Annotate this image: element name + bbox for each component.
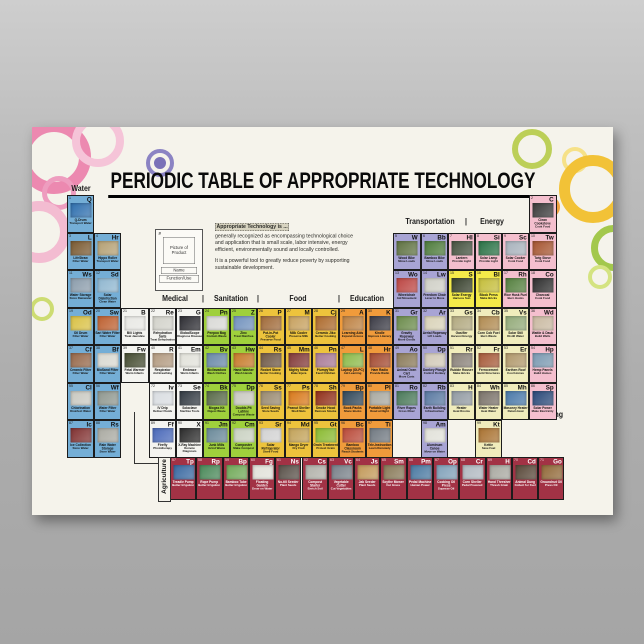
element-caption: Mango DryerDry Fruit [286, 444, 311, 451]
element-symbol: Rb [437, 384, 445, 391]
element-caption: ComposterMake Compost [231, 444, 256, 451]
element-function: Move Carts [394, 376, 419, 379]
element-cell-83: 83HHeaterHeat Rooms [448, 383, 475, 421]
element-cell-content: 35VsSolar StillDistill Water [503, 309, 528, 345]
element-caption: Water FilterFilter Water [95, 406, 120, 413]
element-cell-content: 27MMilk CoolerPreserve Milk [286, 309, 311, 345]
element-photo [370, 428, 391, 443]
element-symbol: Od [83, 309, 92, 316]
element-cell-79: 79BpBook PacksShare Books [339, 383, 366, 421]
element-photo [179, 391, 200, 406]
element-cell-76: 76SsSeed SavingStore Seeds [257, 383, 284, 421]
element-caption: Pedal MachineHuman Power [408, 481, 432, 488]
element-name: Aerial Ropeway [422, 331, 447, 335]
element-caption: Portable LightRead at Night [367, 406, 392, 413]
element-cell-content: 60FgFloating GardenGrow on Water [250, 458, 274, 499]
element-photo [98, 241, 119, 256]
element-number: 55 [69, 384, 73, 388]
element-number: 4 [96, 234, 98, 238]
element-number: 69 [488, 459, 492, 463]
element-photo [98, 391, 119, 406]
element-photo [437, 465, 458, 480]
element-photo [234, 353, 255, 368]
element-name: Water Filter [95, 406, 120, 410]
element-number: 20 [96, 309, 100, 313]
element-photo [305, 465, 326, 480]
element-cell-13: 13WoWheelchairAid Movement [393, 270, 420, 308]
element-cell-38: 38BfBioSand FilterFilter Water [94, 345, 121, 383]
element-number: 10 [531, 234, 535, 238]
element-symbol: Sw [110, 309, 119, 316]
element-number: 28 [314, 309, 318, 313]
element-caption: LifeStrawFilter Water [68, 256, 93, 263]
element-cell-content: 74BkBiogas KitDigest Waste [204, 384, 229, 420]
element-name: Sari Water Filter [95, 331, 120, 335]
element-function: Better Irrigation [197, 484, 221, 487]
element-photo [98, 278, 119, 293]
element-number: 23 [178, 309, 182, 313]
element-symbol: B [142, 309, 147, 316]
element-function: Control Donkey [422, 372, 447, 375]
element-number: 90 [178, 422, 182, 426]
element-caption: WheelchairAid Movement [394, 294, 419, 301]
element-photo [234, 428, 255, 443]
element-symbol: Co [546, 271, 554, 278]
element-function: Share Books [340, 410, 365, 413]
element-cell-content: 32ArAerial RopewayLift Loads [422, 309, 447, 345]
element-name: Solaclave [177, 406, 202, 410]
element-photo [71, 241, 92, 256]
element-photo [200, 465, 221, 480]
element-function: Preserve Milk [286, 335, 311, 338]
element-caption: Hand ThresherThresh Grain [487, 481, 511, 488]
element-caption: Peanut ShellerShell Nuts [286, 406, 311, 413]
element-symbol: Sc [519, 234, 527, 241]
element-cell-91: 91JmJunk MillsGrind Waste [203, 420, 230, 458]
element-caption: Ceramic FilterFilter Water [68, 369, 93, 376]
element-function: Remote Diagnosis [177, 447, 202, 453]
element-cell-content: 19OdOil DrumFilter Water [68, 309, 93, 345]
group-label: Energy [480, 217, 504, 226]
element-name: Solar Disinfection [95, 294, 120, 301]
element-caption: Solar CookerCook Food [503, 256, 528, 263]
element-photo [451, 278, 472, 293]
decor-circle [588, 265, 612, 289]
element-number: 16 [477, 272, 481, 276]
element-symbol: Ic [86, 421, 91, 428]
element-function: Provide Light [476, 260, 501, 263]
element-number: 88 [96, 422, 100, 426]
element-symbol: Fr [493, 346, 499, 353]
element-cell-content: 39FwFetal WarmerWarm Infants [122, 346, 147, 382]
element-caption: Donkey PloughControl Donkey [422, 369, 447, 376]
element-cell-content: 86SpSolar PowerMake Electricity [530, 384, 555, 420]
element-cell-content: 4HrHippo RollerTransport Water [95, 234, 120, 270]
element-symbol: Iv [168, 384, 173, 391]
element-symbol: Wd [544, 309, 554, 316]
element-cell-content: 48HrHam RadioProvide Radio [367, 346, 392, 382]
element-name: Learning Aids [340, 331, 365, 335]
element-number: 53 [504, 347, 508, 351]
element-caption: Ham RadioProvide Radio [367, 369, 392, 376]
element-function: Squeeze Oil [434, 488, 458, 491]
element-symbol: Sh [328, 384, 336, 391]
element-cell-45: 45MmMighty MitadBake Injera [285, 345, 312, 383]
element-symbol: Pn [220, 309, 228, 316]
element-caption: IV DripDeliver Fluids [150, 406, 175, 413]
element-name: Bamboo Classroom [340, 444, 365, 451]
element-photo [506, 353, 527, 368]
element-function: Transport Water [68, 222, 93, 225]
element-cell-content: 21BBili LightsTreat Jaundice [122, 309, 147, 345]
element-number: 27 [287, 309, 291, 313]
element-cell-15: 15SSolar EnergyHarness Sun [448, 270, 475, 308]
element-cell-content: 22ReRehydration SaltsTreat Dehydration [150, 309, 175, 345]
element-name: Animal Oxen Cart [394, 369, 419, 376]
element-cell-content: 65SmScythe MowerCut Grass [381, 458, 405, 499]
element-function: Move Goods [394, 338, 419, 341]
element-name: Zinc [231, 331, 256, 335]
element-caption: Hand WasherWash Hands [231, 369, 256, 376]
element-cell-53: 53ErEarthen RoofCool Homes [502, 345, 529, 383]
element-number: 87 [69, 422, 73, 426]
element-name: Gravity Ropeway [394, 331, 419, 338]
element-photo [234, 316, 255, 331]
element-photo [533, 241, 554, 256]
element-cell-content: 58RpRope PumpBetter Irrigation [197, 458, 221, 499]
element-caption: Rocket StoveBetter Cooking [258, 369, 283, 376]
element-photo [358, 465, 379, 480]
element-photo [479, 428, 500, 443]
element-symbol: Sp [546, 384, 554, 391]
element-cell-4: 4HrHippo RollerTransport Water [94, 233, 121, 271]
element-cell-content: 41EmEmbraceWarm Infants [177, 346, 202, 382]
element-cell-31: 31GrGravity RopewayMove Goods [393, 308, 420, 346]
element-photo [533, 203, 554, 218]
element-caption: Grain TreatmentProtect Grain [313, 444, 338, 451]
element-cell-content: 9ScSolar CookerCook Food [503, 234, 528, 270]
element-name: Hippo Roller [95, 256, 120, 260]
element-cell-54: 54HpHemp PanelsBuild Homes [529, 345, 556, 383]
element-name: Wood Bike [394, 256, 419, 260]
element-cell-97: 97TiTele-InstructionLearn Remotely [366, 420, 393, 458]
element-symbol: W [412, 234, 418, 241]
element-number: 83 [450, 384, 454, 388]
element-number: 93 [259, 422, 263, 426]
element-number: 8 [477, 234, 479, 238]
element-function: Make Compost [231, 447, 256, 450]
element-cell-6: 6BbBamboo BikeMove Loads [421, 233, 448, 271]
element-number: 7 [450, 234, 452, 238]
element-cell-88: 88RsRain Water StorageStore Water [94, 420, 121, 458]
element-symbol: Wo [408, 271, 418, 278]
element-cell-28: 28CjCeramic JikoBetter Cooking [312, 308, 339, 346]
element-caption: Rope PumpBetter Irrigation [197, 481, 221, 488]
element-cell-55: 55ClChlorinationDisinfect Water [67, 383, 94, 421]
element-cell-content: 85MhMasonry HeaterRetain Heat [503, 384, 528, 420]
element-caption: GlobalScopeDiagnose Disease [177, 331, 202, 338]
element-function: Store Rainwater [68, 297, 93, 300]
element-function: Better Irrigation [171, 484, 195, 487]
element-name: Heater [449, 406, 474, 410]
element-cell-50: 50DpDonkey PloughControl Donkey [421, 345, 448, 383]
element-cell-62: 62CsCompost StarterEnrich Soil [302, 457, 328, 500]
element-symbol: Wh [490, 384, 500, 391]
element-symbol: Tp [186, 458, 194, 465]
element-number: 38 [96, 347, 100, 351]
element-cell-content: 49AoAnimal Oxen CartMove Carts [394, 346, 419, 382]
element-cell-content: 34CbCorn Cob FuelBurn Waste [476, 309, 501, 345]
element-function: Wash Hands [231, 372, 256, 375]
element-photo [410, 465, 431, 480]
element-symbol: Sr [275, 421, 282, 428]
element-cell-69: 69HHand ThresherThresh Grain [486, 457, 512, 500]
element-name: Clean Cookstove [530, 219, 555, 226]
element-photo [451, 353, 472, 368]
element-caption: GasifierHarvest Energy [449, 331, 474, 338]
element-symbol: P [278, 309, 282, 316]
element-function: Cook Food [530, 226, 555, 229]
element-name: Biogas Kit [204, 406, 229, 410]
element-name: Bamboo Bike [422, 256, 447, 260]
element-name: Vegetable Cutter [329, 481, 353, 488]
group-label: | [257, 294, 259, 303]
element-cell-94: 94MdMango DryerDry Fruit [285, 420, 312, 458]
element-number: 89 [151, 422, 155, 426]
element-symbol: R [169, 346, 174, 353]
element-cell-57: 57TpTreadle PumpBetter Irrigation [170, 457, 196, 500]
element-photo [288, 316, 309, 331]
element-number: 85 [504, 384, 508, 388]
element-photo [479, 353, 500, 368]
element-photo [451, 316, 472, 331]
element-name: Pot-in-Pot Cooler [258, 331, 283, 338]
element-key-inner: # Picture of Product Name Function/Use [156, 230, 202, 290]
element-cell-content: 83HHeaterHeat Rooms [449, 384, 474, 420]
element-number: 61 [277, 459, 281, 463]
element-number: 14 [423, 272, 427, 276]
element-caption: Animal DungCollect for Fuel [513, 481, 537, 488]
element-caption: SolaclaveSterilize Tools [177, 406, 202, 413]
element-number: 67 [435, 459, 439, 463]
element-caption: Corn Cob FuelBurn Waste [476, 331, 501, 338]
element-cell-content: 2CClean CookstoveCook Food [530, 196, 555, 232]
element-cell-2: 2CClean CookstoveCook Food [529, 195, 556, 233]
element-cell-content: 66PmPedal MachineHuman Power [408, 458, 432, 499]
element-caption: Hemp PanelsBuild Homes [530, 369, 555, 376]
element-cell-content: 37CfCeramic FilterFilter Water [68, 346, 93, 382]
key-number-label: # [159, 231, 162, 236]
element-cell-content: 82RbEarth BuildingInfrastructure [422, 384, 447, 420]
element-cell-content: 8SiSolar LampProvide Light [476, 234, 501, 270]
element-function: Filter Water [68, 335, 93, 338]
element-cell-content: 43HwHand WasherWash Hands [231, 346, 256, 382]
element-function: Cool Homes [503, 372, 528, 375]
element-caption: Fetal WarmerWarm Infants [122, 369, 147, 376]
element-name: Earth Building [422, 406, 447, 410]
element-function: Cut Grass [381, 484, 405, 487]
element-caption: KettleSave Fuel [476, 444, 501, 451]
element-photo [397, 391, 418, 406]
element-photo [125, 316, 146, 331]
element-caption: Smoke HoodRemove Smoke [313, 406, 338, 413]
element-cell-content: 10TwTwig StoveCook Food [530, 234, 555, 270]
element-caption: Treadle PumpBetter Irrigation [171, 481, 195, 488]
element-name: Portable Light [367, 406, 392, 410]
element-symbol: L [360, 346, 364, 353]
element-function: Cook Food [530, 297, 555, 300]
element-symbol: Em [191, 346, 201, 353]
element-symbol: K [386, 309, 391, 316]
element-symbol: Gt [330, 421, 337, 428]
element-cell-content: 89FfFireflyPhototherapy [150, 421, 175, 457]
element-number: 74 [205, 384, 209, 388]
element-symbol: Hr [384, 346, 391, 353]
agriculture-label-text: Agriculture [161, 455, 168, 498]
element-cell-content: 69HHand ThresherThresh Grain [487, 458, 511, 499]
element-cell-content: 77PsPeanut ShellerShell Nuts [286, 384, 311, 420]
element-photo [261, 316, 282, 331]
element-symbol: Ns [291, 458, 299, 465]
element-symbol: Op [448, 458, 457, 465]
element-caption: Jab SeederPlant Seeds [355, 481, 379, 488]
key-name-label: Name [161, 267, 197, 274]
element-function: Filter Water [68, 260, 93, 263]
element-cell-32: 32ArAerial RopewayLift Loads [421, 308, 448, 346]
element-function: Filter Water [95, 372, 120, 375]
element-name: River Ropes [394, 406, 419, 410]
element-photo [424, 241, 445, 256]
element-cell-58: 58RpRope PumpBetter Irrigation [196, 457, 222, 500]
element-symbol: Pl [385, 384, 391, 391]
element-caption: BioSand FilterFilter Water [95, 369, 120, 376]
element-number: 13 [395, 272, 399, 276]
element-number: 76 [259, 384, 263, 388]
element-photo [315, 391, 336, 406]
element-number: 99 [477, 422, 481, 426]
element-photo [397, 278, 418, 293]
element-function: Cut Vegetables [329, 488, 353, 491]
intro-paragraph-2: It is a powerful tool to greatly reduce … [215, 257, 361, 271]
element-caption: BicilavadoraWash Clothes [204, 369, 229, 376]
element-symbol: Tw [546, 234, 554, 241]
element-cell-7: 7HlLanternProvide Light [448, 233, 475, 271]
element-symbol: Hp [546, 346, 554, 353]
element-function: Protect Grain [313, 447, 338, 450]
element-photo [533, 391, 554, 406]
element-cell-content: 80PlPortable LightRead at Night [367, 384, 392, 420]
element-caption: Water StorageStore Rainwater [68, 294, 93, 301]
element-cell-56: 56WfWater FilterFilter Water [94, 383, 121, 421]
group-label: Education [350, 294, 384, 303]
element-photo [226, 465, 247, 480]
group-label: Water [71, 184, 90, 193]
element-cell-96: 96BcBamboo ClassroomReach Students [339, 420, 366, 458]
element-cell-26: 26PPot-in-Pot CoolerPreserve Food [257, 308, 284, 346]
element-caption: Gravity RopewayMove Goods [394, 331, 419, 341]
element-caption: Aluminum CanoeMove on Water [422, 444, 447, 454]
element-photo [370, 316, 391, 331]
element-cell-content: 73SeSolaclaveSterilize Tools [177, 384, 202, 420]
element-cell-content: 71GoGroundnut OilPress Oil [539, 458, 563, 499]
element-function: Make Electricity [530, 410, 555, 413]
element-cell-90: 90XX-Ray MachineRemote Diagnosis [176, 420, 203, 458]
element-number: 29 [341, 309, 345, 313]
element-symbol: Pn [328, 346, 336, 353]
element-photo [542, 465, 563, 480]
element-number: 92 [232, 422, 236, 426]
element-caption: Bili LightsTreat Jaundice [122, 331, 147, 338]
element-photo [71, 203, 92, 218]
element-photo [71, 316, 92, 331]
element-function: Build Homes [530, 372, 555, 375]
element-caption: FerrocementBuild Structures [476, 369, 501, 376]
element-cell-content: 64JsJab SeederPlant Seeds [355, 458, 379, 499]
element-symbol: Cd [527, 458, 535, 465]
element-number: 71 [540, 459, 544, 463]
element-number: 35 [504, 309, 508, 313]
element-number: 41 [178, 347, 182, 351]
element-cell-content: 91JmJunk MillsGrind Waste [204, 421, 229, 457]
element-photo [288, 353, 309, 368]
element-name: Solar Lamp [476, 256, 501, 260]
element-cell-10: 10TwTwig StoveCook Food [529, 233, 556, 271]
element-photo [370, 353, 391, 368]
element-cell-content: 59BpBamboo TubeBetter Irrigation [224, 458, 248, 499]
element-caption: RespiratorAid Breathing [150, 369, 175, 376]
element-symbol: Rs [274, 346, 282, 353]
element-name: Rehydration Salts [150, 331, 175, 338]
element-cell-content: 46PnPlumpy'NutFeed Children [313, 346, 338, 382]
element-caption: No-till SeederPlant Seeds [276, 481, 300, 488]
element-cell-39: 39FwFetal WarmerWarm Infants [121, 345, 148, 383]
element-photo [315, 316, 336, 331]
element-cell-content: 98AmAluminum CanoeMove on Water [422, 421, 447, 457]
element-photo [125, 353, 146, 368]
element-cell-42: 42BvBicilavadoraWash Clothes [203, 345, 230, 383]
element-cell-23: 23GGlobalScopeDiagnose Disease [176, 308, 203, 346]
element-symbol: Se [193, 384, 201, 391]
element-function: Plant Seeds [276, 484, 300, 487]
element-photo [315, 428, 336, 443]
element-symbol: Hl [466, 234, 472, 241]
element-photo [451, 391, 472, 406]
element-caption: Plumpy'NutFeed Children [313, 369, 338, 376]
element-number: 46 [314, 347, 318, 351]
element-cell-29: 29ALearning AidsExpand Access [339, 308, 366, 346]
element-cell-36: 36WdWattle & DaubBuild Walls [529, 308, 556, 346]
intro-text-block: Appropriate Technology is ... generally … [215, 223, 361, 303]
element-caption: Learning AidsExpand Access [340, 331, 365, 338]
element-symbol: X [196, 421, 200, 428]
element-cell-content: 13WoWheelchairAid Movement [394, 271, 419, 307]
element-function: Digest Waste [204, 410, 229, 413]
element-caption: River RopesCross River [394, 406, 419, 413]
element-cell-77: 77PsPeanut ShellerShell Nuts [285, 383, 312, 421]
element-symbol: Vs [519, 309, 527, 316]
element-caption: Wood BikeMove Loads [394, 256, 419, 263]
element-number: 50 [423, 347, 427, 351]
element-caption: Solar LampProvide Light [476, 256, 501, 263]
element-photo [261, 391, 282, 406]
element-number: 73 [178, 384, 182, 388]
element-photo [234, 391, 255, 406]
element-photo [315, 353, 336, 368]
element-photo [384, 465, 405, 480]
element-photo [98, 316, 119, 331]
element-function: Transport Water [95, 260, 120, 263]
element-symbol: Vc [344, 458, 352, 465]
